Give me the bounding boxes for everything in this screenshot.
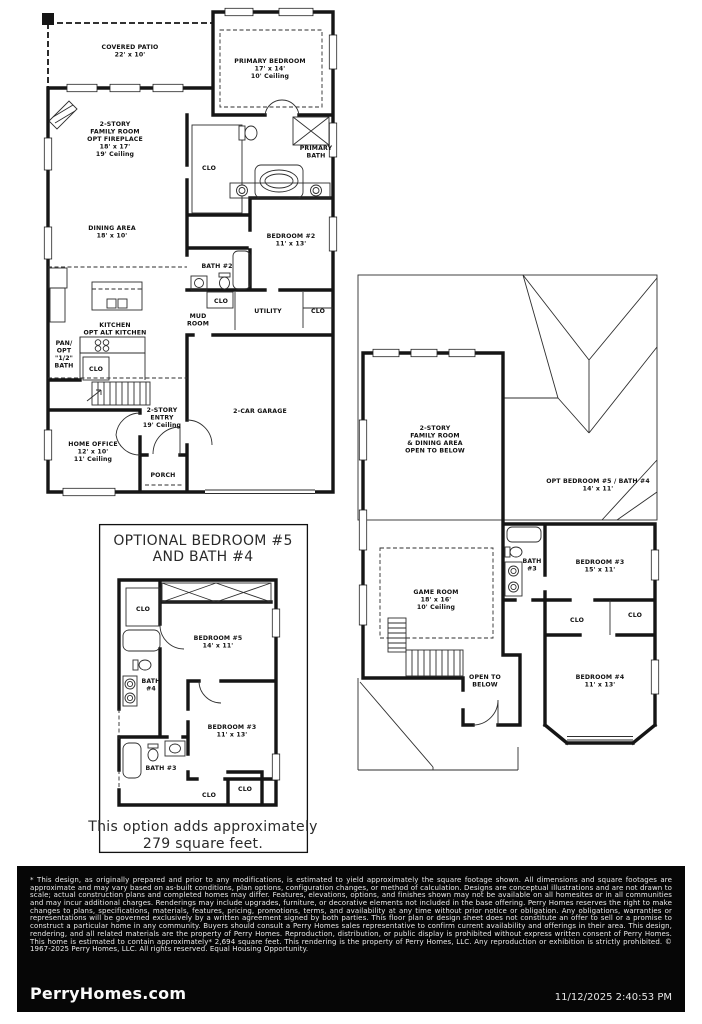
label-opt-clo-top: CLO [136,606,150,613]
footer-row: PerryHomes.com 11/12/2025 2:40:53 PM [30,984,672,1003]
porch-roof-lines [358,678,518,770]
label-pantry-4: BATH [54,363,73,370]
label-primary-bedroom-ceiling: 10' Ceiling [251,73,289,80]
label-primary-clo: CLO [202,165,216,172]
label-game-room-1: GAME ROOM [413,589,458,596]
bath-arch [265,100,299,115]
label-entry-2: ENTRY [150,415,174,422]
label-game-room-3: 10' Ceiling [417,604,455,611]
label-opt-clo-b: CLO [238,786,252,793]
label-opt-bath4-1: BATH [141,678,160,685]
label-opt-bedroom3: BEDROOM #3 [208,724,257,731]
brand-text: PerryHomes.com [30,984,186,1003]
label-clo-kitchen: CLO [89,366,103,373]
label-mud-2: ROOM [187,321,209,328]
label-bath3-2: #3 [527,566,537,573]
label-opt-bed5: OPT BEDROOM #5 / BATH #4 [546,478,650,485]
label-family-room-2: FAMILY ROOM [90,129,139,136]
label-entry-1: 2-STORY [147,407,178,414]
label-kitchen-1: KITCHEN [99,322,131,329]
stairs [48,378,187,405]
primary-closet [192,125,242,213]
label-home-office-2: 12' x 10' [78,449,109,456]
stairs-upper [388,618,463,676]
legal-panel: * This design, as originally prepared an… [17,866,685,1012]
tub-fixture [255,165,303,198]
label-open-below-2: BELOW [472,682,498,689]
label-home-office-1: HOME OFFICE [68,441,117,448]
label-covered-patio-dims: 22' x 10' [115,52,146,59]
label-bedroom4: BEDROOM #4 [576,674,625,681]
windows [44,8,336,495]
attic-storage [162,583,271,602]
label-opt-clo-a: CLO [202,792,216,799]
label-bath2: BATH #2 [201,263,232,270]
toilet-fixture [239,126,257,140]
label-clo-a: CLO [570,617,584,624]
label-pantry-1: PAN/ [56,340,73,347]
optional-caption-2: 279 square feet. [143,836,263,852]
first-floor-plan: COVERED PATIO 22' x 10' PRIMARY BEDROOM … [35,5,340,505]
optional-bedroom-panel: OPTIONAL BEDROOM #5 AND BATH #4 [99,524,308,853]
label-bath3-1: BATH [522,558,541,565]
label-bedroom2-dims: 11' x 13' [276,241,307,248]
label-clo-mid: CLO [214,298,228,305]
label-home-office-3: 11' Ceiling [74,456,112,463]
label-primary-bedroom-dims: 17' x 14' [255,66,286,73]
disclaimer-text: * This design, as originally prepared an… [30,877,672,954]
label-dining-dims: 18' x 10' [97,233,128,240]
label-bedroom3-dims: 15' x 11' [585,567,616,574]
label-clo-b: CLO [628,612,642,619]
label-porch: PORCH [150,472,175,479]
label-pantry-3: "1/2" [55,355,73,362]
label-opt-bath3: BATH #3 [145,765,176,772]
optional-title-1: OPTIONAL BEDROOM #5 [113,533,292,549]
label-garage: 2-CAR GARAGE [233,408,287,415]
label-family-room-5: 19' Ceiling [96,151,134,158]
label-primary-bath-2: BATH [306,153,325,160]
hall-door-arc [473,700,498,725]
label-opt-bed5-dims: 14' x 11' [583,486,614,493]
optional-walls [119,580,276,805]
bath4-fixtures [123,630,160,706]
label-bedroom4-dims: 11' x 13' [585,682,616,689]
label-primary-bedroom: PRIMARY BEDROOM [234,58,305,65]
optional-caption-1: This option adds approximately [87,819,317,835]
label-mud-1: MUD [190,313,207,320]
label-kitchen-2: OPT ALT KITCHEN [84,330,147,337]
label-entry-3: 19' Ceiling [143,422,181,429]
label-game-room-2: 18' x 16' [421,597,452,604]
vanity-sinks [230,183,330,198]
garage-door [205,488,315,497]
label-open-below-1: OPEN TO [469,674,501,681]
label-clo-right: CLO [311,308,325,315]
label-family-open-3: & DINING AREA [407,440,462,447]
label-covered-patio: COVERED PATIO [102,44,159,51]
label-family-open-1: 2-STORY [420,425,451,432]
label-family-room-3: OPT FIREPLACE [87,136,143,143]
floor-plan-sheet: COVERED PATIO 22' x 10' PRIMARY BEDROOM … [0,0,702,1024]
patio-column [42,13,54,25]
shower-fixture [293,117,329,145]
label-utility: UTILITY [254,308,282,315]
label-family-open-4: OPEN TO BELOW [405,448,465,455]
label-family-open-2: FAMILY ROOM [410,433,459,440]
label-dining: DINING AREA [88,225,136,232]
optional-bath3-fixtures [123,741,185,778]
label-family-room-1: 2-STORY [100,121,131,128]
second-floor-plan: 2-STORY FAMILY ROOM & DINING AREA OPEN T… [355,270,700,800]
label-family-room-4: 18' x 17' [100,144,131,151]
label-opt-bedroom5: BEDROOM #5 [194,635,243,642]
timestamp-text: 11/12/2025 2:40:53 PM [555,992,672,1003]
label-opt-bath4-2: #4 [146,686,156,693]
label-pantry-2: OPT [57,348,72,355]
fireplace [49,101,77,129]
label-bedroom3: BEDROOM #3 [576,559,625,566]
optional-title-2: AND BATH #4 [153,549,254,565]
bay-window [567,737,633,741]
label-bedroom2: BEDROOM #2 [267,233,316,240]
bath2-fixtures [191,251,250,290]
label-primary-bath-1: PRIMARY [300,145,333,152]
label-opt-bedroom5-dims: 14' x 11' [203,643,234,650]
label-opt-bedroom3-dims: 11' x 13' [217,732,248,739]
